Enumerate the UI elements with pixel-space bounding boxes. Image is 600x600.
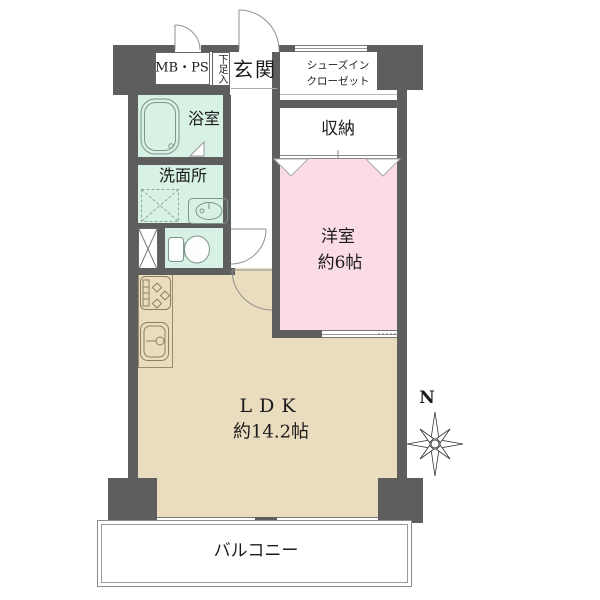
toilet-door-arc xyxy=(231,229,266,264)
wall xyxy=(201,45,239,52)
shoe-cabinet-label: 下足入 xyxy=(216,54,226,84)
corner-pillar xyxy=(377,45,423,90)
wall xyxy=(128,268,235,275)
western-room-label: 洋室 xyxy=(321,228,355,248)
shoes-in-closet-label: シューズイン クローゼット xyxy=(307,58,370,90)
corner-pillar xyxy=(378,478,423,523)
right-outer-wall xyxy=(397,90,407,480)
ldk-size: 約14.2帖 xyxy=(233,423,309,444)
left-outer-wall xyxy=(128,90,138,480)
wall xyxy=(128,223,230,228)
compass-north-label: N xyxy=(419,389,435,409)
window xyxy=(295,45,367,52)
wall xyxy=(272,100,397,108)
mbps-door-arc xyxy=(175,25,200,50)
wall xyxy=(279,45,295,52)
wall xyxy=(272,108,280,338)
entrance-door-arc xyxy=(239,10,279,50)
shoes-in-closet-line1: シューズイン xyxy=(307,59,369,71)
ldk-label: LDK xyxy=(239,396,302,418)
mbps-label: MB・PS xyxy=(155,62,209,77)
compass-rose-icon xyxy=(407,412,463,476)
western-room-size: 約6帖 xyxy=(318,254,363,274)
ldk-door-threshold xyxy=(235,268,272,275)
wall xyxy=(367,45,377,52)
wall xyxy=(113,85,230,95)
balcony-label: バルコニー xyxy=(214,542,299,562)
storage-label: 収納 xyxy=(321,120,355,140)
entrance-label: 玄関 xyxy=(233,59,277,82)
wall xyxy=(223,95,231,275)
shoes-in-closet-line2: クローゼット xyxy=(307,75,370,87)
floor-plan: MB・PS 下足入 玄関 シューズイン クローゼット 浴室 洗面所 収納 洋室 … xyxy=(0,0,600,600)
wall xyxy=(272,330,322,338)
shaft-box xyxy=(138,228,158,270)
sliding-door xyxy=(322,330,397,338)
corner-pillar xyxy=(108,478,157,523)
washroom-label: 洗面所 xyxy=(159,167,207,185)
toilet-area xyxy=(165,228,230,268)
kitchen-counter xyxy=(138,272,173,368)
wall xyxy=(128,157,230,165)
corner-pillar xyxy=(113,45,155,90)
bathroom-label: 浴室 xyxy=(188,110,220,128)
